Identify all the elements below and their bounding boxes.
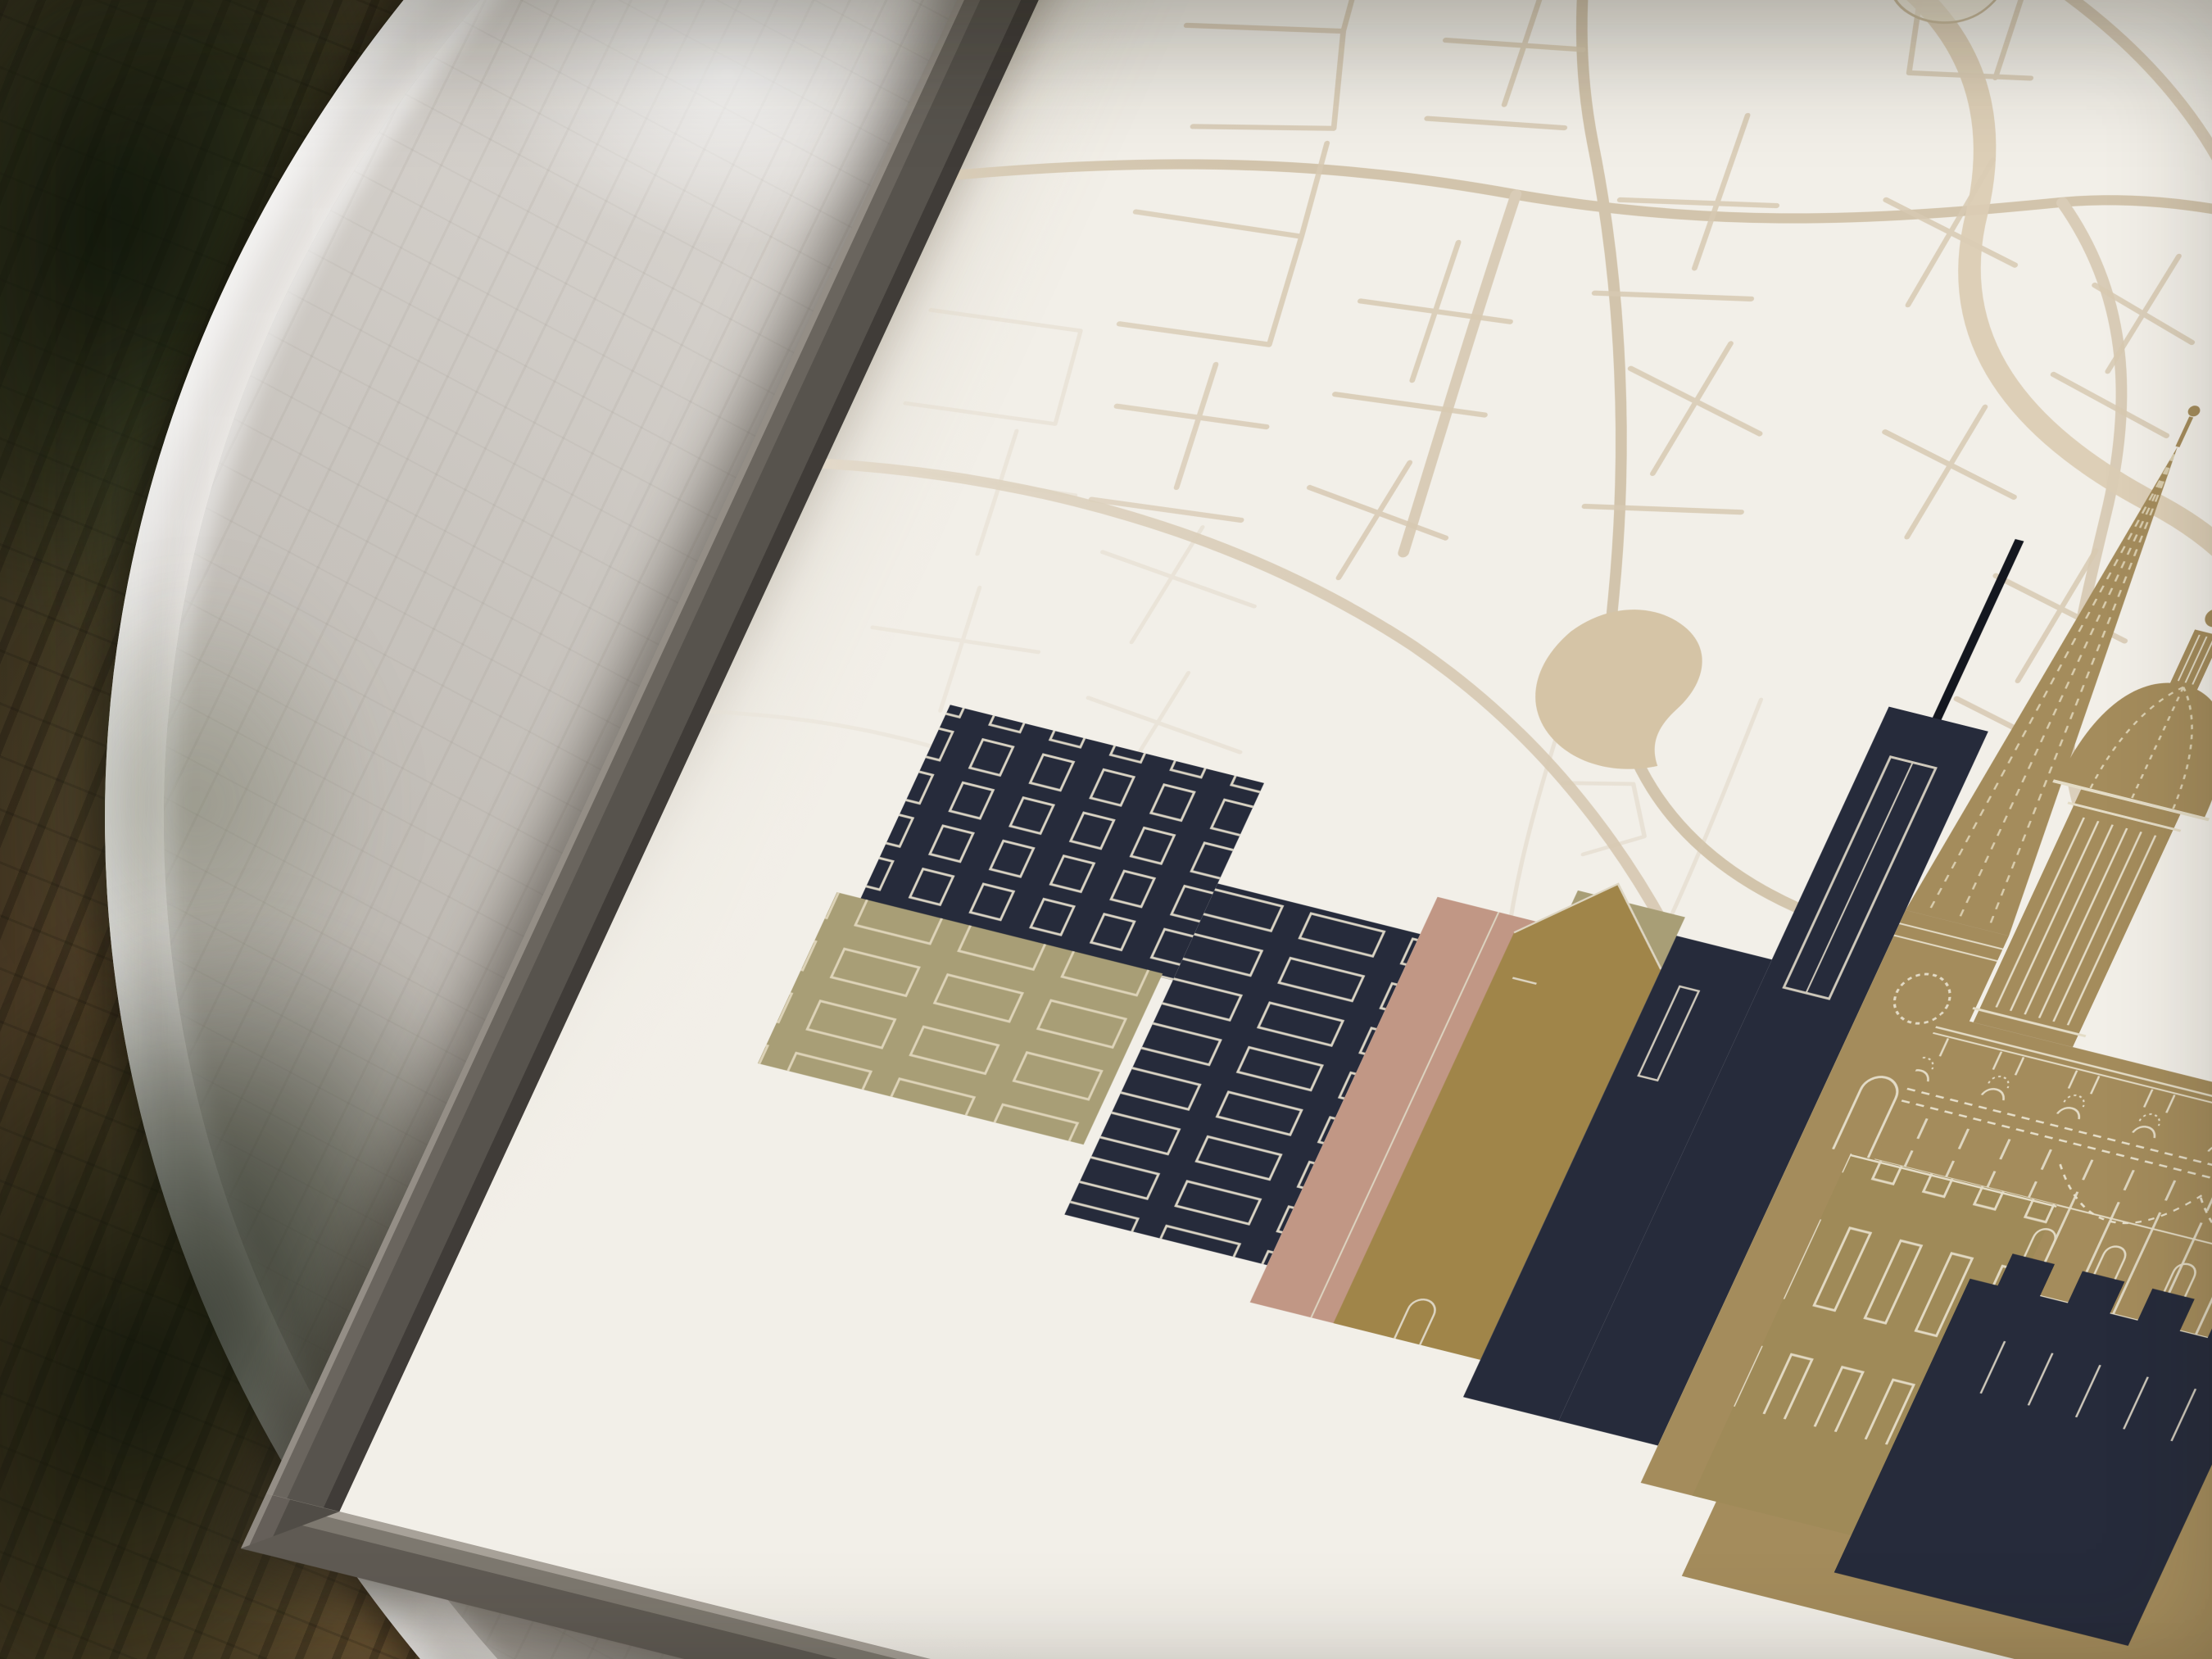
antenna-mast xyxy=(1929,539,2024,728)
spire-finial xyxy=(2186,405,2201,418)
photo-scene xyxy=(0,0,2212,1659)
